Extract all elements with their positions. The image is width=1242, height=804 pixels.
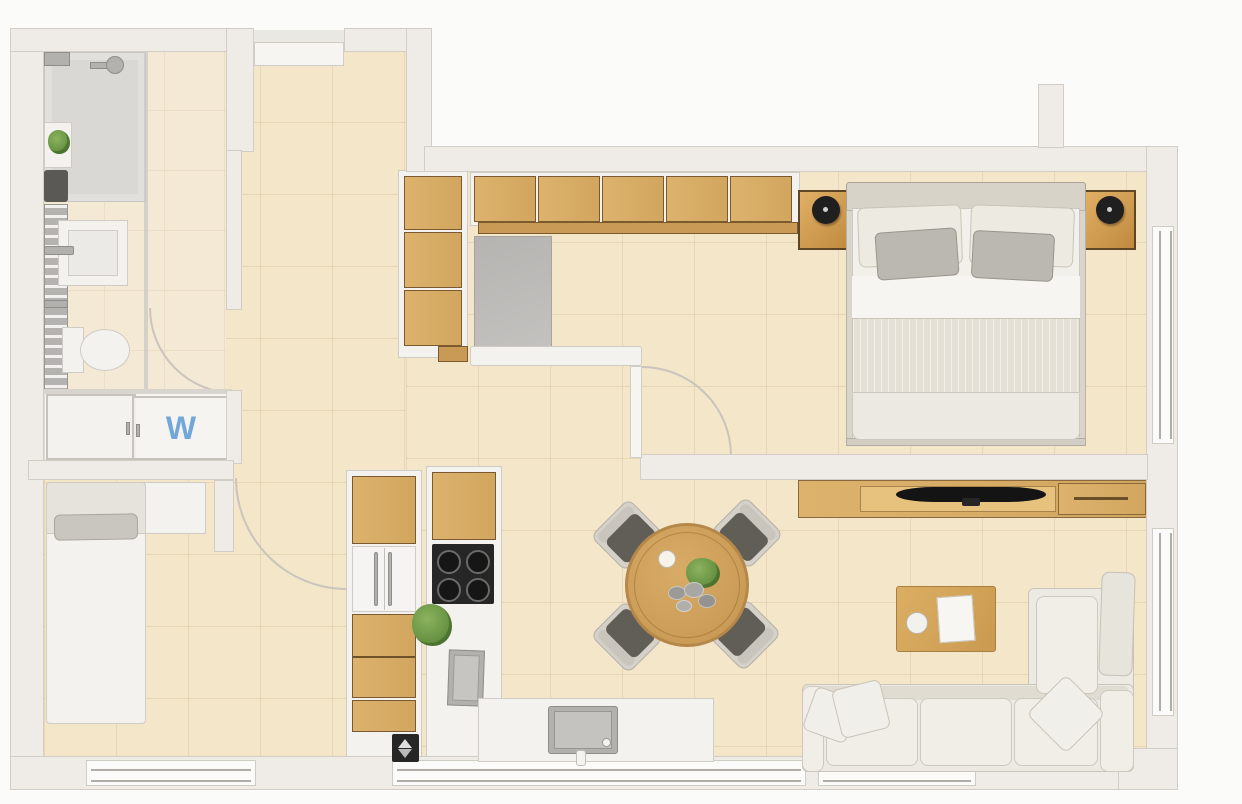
wall-living-bedroom — [640, 454, 1148, 480]
floor-plan: W — [0, 0, 1242, 804]
shower-glass-partition — [144, 52, 148, 392]
chaise-back-cushion — [1098, 571, 1136, 676]
wall-closet-right — [226, 390, 242, 464]
table-lamp-left-icon — [812, 196, 840, 224]
kitchen-cabinet-upper — [352, 476, 416, 544]
washing-machine-label: W — [132, 396, 230, 460]
refrigerator-door-split — [384, 548, 385, 610]
bed-pillow-front-right — [971, 230, 1055, 282]
sofa-seat-2 — [920, 698, 1012, 766]
wardrobe-door-1 — [474, 176, 536, 222]
stone-decor — [698, 594, 716, 608]
sliding-door-left — [46, 394, 136, 460]
tall-wardrobe-door-2 — [404, 232, 462, 288]
window-glass-lines — [1159, 533, 1172, 711]
living-window-right — [1152, 528, 1174, 716]
tall-wardrobe-door-3 — [404, 290, 462, 346]
refrigerator-handle-left — [374, 552, 378, 606]
wall-top-left — [10, 28, 254, 52]
coffee-table-tray — [936, 595, 975, 643]
window-glass-lines — [397, 769, 801, 782]
burner-icon — [466, 578, 490, 602]
table-lamp-right-icon — [1096, 196, 1124, 224]
bed-blanket — [852, 318, 1080, 394]
tall-wardrobe-base — [438, 346, 468, 362]
stone-decor — [676, 600, 692, 612]
hallway-bench — [470, 346, 642, 366]
wardrobe-door-2 — [538, 176, 600, 222]
wall-bathroom-right — [226, 150, 242, 310]
wardrobe-door-3 — [602, 176, 664, 222]
bathroom-wall-hook — [44, 52, 70, 66]
wall-entry-pier — [226, 28, 254, 152]
bathroom-plant-icon — [48, 130, 70, 154]
burner-icon — [437, 578, 461, 602]
bedroom-window — [1152, 226, 1174, 444]
bed-foot-roll — [852, 392, 1080, 440]
oven — [392, 734, 419, 762]
sink-faucet-stem — [576, 750, 586, 766]
tall-wardrobe-door-1 — [404, 176, 462, 230]
sliding-door-left-handle — [126, 422, 130, 435]
burner-icon — [437, 550, 461, 574]
wall-chimney-stub — [1038, 84, 1064, 148]
oven-glyph-icon — [398, 739, 412, 748]
sofa-armrest-right — [1100, 690, 1134, 772]
burner-icon — [466, 550, 490, 574]
toilet-bowl — [80, 329, 130, 371]
kitchen-column-sink-rim — [452, 655, 480, 702]
window-glass-lines — [91, 769, 251, 782]
kitchen-plant-icon — [412, 604, 452, 646]
wall-study-top — [28, 460, 234, 480]
kitchen-dining-window-bottom — [392, 760, 806, 786]
closet-track — [44, 389, 232, 394]
refrigerator-handle-right — [388, 552, 392, 606]
washbasin-bowl — [68, 230, 118, 276]
closet-niche — [474, 236, 552, 352]
basin-faucet-icon — [44, 246, 74, 255]
study-desk — [138, 482, 206, 534]
wall-left — [10, 28, 44, 790]
bed-sheet — [852, 276, 1080, 320]
coffee-table-plate — [906, 612, 928, 634]
wall-top-main — [424, 146, 1154, 172]
tv-console-drawer-handle — [1074, 497, 1128, 500]
oven-glyph2-icon — [398, 749, 412, 758]
kitchen-cabinet-mid-split — [353, 656, 415, 658]
single-bed-pillow — [54, 513, 138, 540]
wall-study-stub — [214, 480, 234, 552]
bed-pillow-front-left — [874, 227, 959, 281]
entry-door-leaf — [254, 42, 344, 66]
wardrobe-door-4 — [666, 176, 728, 222]
window-glass-lines — [1159, 231, 1172, 439]
wardrobe-shelf-strip — [478, 222, 798, 234]
study-window-bottom — [86, 760, 256, 786]
toilet-valve — [44, 300, 68, 308]
bathroom-bin — [44, 170, 68, 202]
cup-icon — [658, 550, 676, 568]
cooktop — [432, 544, 494, 604]
kitchen-cabinet-low — [352, 700, 416, 732]
shower-head-icon — [106, 56, 124, 74]
kitchen-counter-cabinet — [432, 472, 496, 540]
bedroom-door-leaf — [630, 366, 642, 458]
sink-faucet-icon — [602, 738, 611, 747]
wardrobe-door-5 — [730, 176, 792, 222]
tv-mount — [962, 498, 980, 506]
